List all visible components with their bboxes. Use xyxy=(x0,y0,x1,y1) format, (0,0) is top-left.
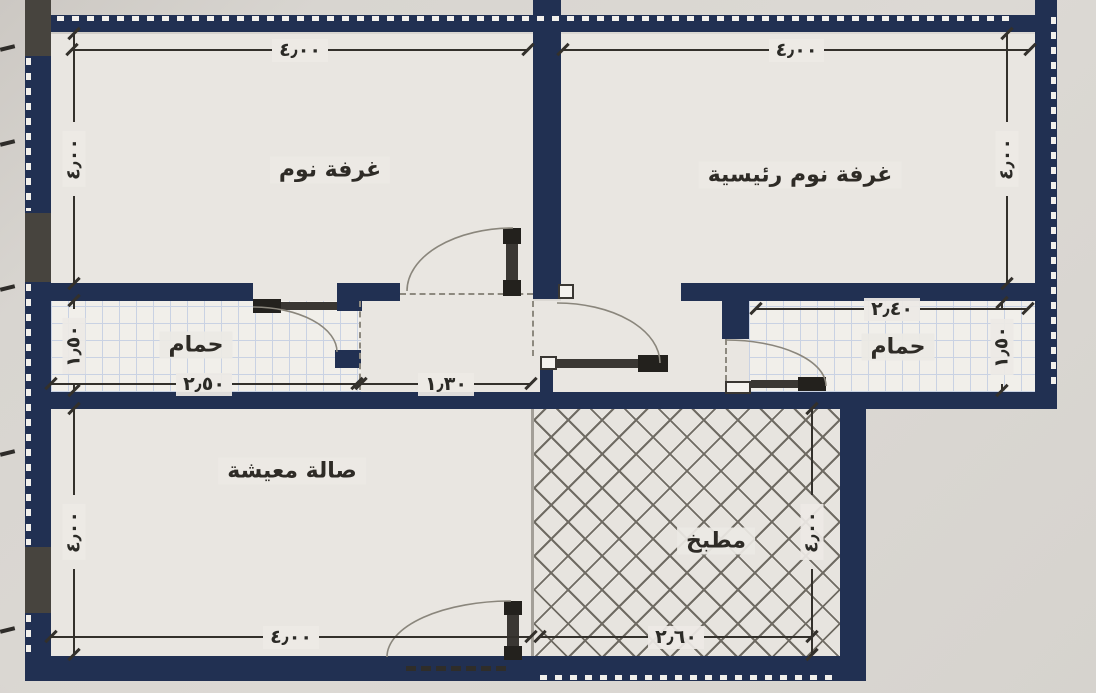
dim-label-bathroom-left-width: ٢٫٥٠ xyxy=(176,373,232,396)
wall-hall-top-left-b xyxy=(337,283,400,301)
wall-hatch-left-1 xyxy=(26,58,31,211)
left-edge-tick-5 xyxy=(0,626,15,634)
dim-label-bathroom-right-depth: ١٫٥٠ xyxy=(991,319,1014,375)
floor-plan-canvas: ٤٫٠٠ ٤٫٠٠ ٢٫٥٠ ١٫٣٠ ٢٫٤٠ ٤٫٠٠ ٢٫٦٠ ٤٫٠٠ … xyxy=(0,0,1096,693)
dim-label-kitchen-width: ٢٫٦٠ xyxy=(648,626,704,649)
door-handle-bath-right xyxy=(798,377,826,391)
room-label-living-room: صالة معيشة xyxy=(218,458,366,485)
door-handle-bath-left xyxy=(253,299,281,313)
wall-hatch-right xyxy=(1051,17,1056,390)
dim-label-master-bedroom-depth: ٤٫٠٠ xyxy=(996,131,1019,187)
dim-label-hall-width: ١٫٣٠ xyxy=(418,373,474,396)
door-cap-bedroom-bottom xyxy=(503,280,521,296)
dashed-master-door-opening xyxy=(532,301,534,356)
dim-label-living-room-width: ٤٫٠٠ xyxy=(263,626,319,649)
dim-label-bathroom-right-width: ٢٫٤٠ xyxy=(864,298,920,321)
door-cap-entrance-top xyxy=(504,601,522,615)
dim-label-bathroom-left-depth: ١٫٥٠ xyxy=(63,318,86,374)
dim-label-kitchen-depth: ٤٫٠٠ xyxy=(801,504,824,560)
door-cap-entrance-bottom xyxy=(504,646,522,660)
wall-hatch-left-3 xyxy=(26,615,31,655)
wall-hatch-left-2 xyxy=(26,284,31,545)
dim-label-master-bedroom-width: ٤٫٠٠ xyxy=(769,39,825,62)
left-edge-tick-3 xyxy=(0,284,15,292)
left-edge-tick-2 xyxy=(0,139,15,147)
dim-label-bedroom-width: ٤٫٠٠ xyxy=(272,39,328,62)
room-label-bathroom-right: حمام xyxy=(862,334,935,361)
dashed-bath-right-door-opening xyxy=(725,339,727,381)
room-label-master-bedroom: غرفة نوم رئيسية xyxy=(699,162,902,189)
wall-master-door-stub xyxy=(540,367,553,392)
left-edge-tick-4 xyxy=(0,449,15,457)
lintel-left-lower xyxy=(25,547,51,613)
floor-opening-master-door xyxy=(561,283,681,301)
lintel-left-middle xyxy=(25,213,51,282)
wall-hatch-bottom xyxy=(540,675,840,680)
door-hinge-master xyxy=(558,284,574,299)
dim-label-living-room-depth: ٤٫٠٠ xyxy=(63,504,86,560)
dashed-entrance-opening xyxy=(406,666,506,671)
kitchen-living-divider-line xyxy=(531,409,534,656)
wall-center-top xyxy=(533,0,561,299)
wall-kitchen-right xyxy=(840,409,866,681)
left-edge-tick-1 xyxy=(0,44,15,52)
wall-hatch-top xyxy=(57,16,1015,21)
room-label-bathroom-left: حمام xyxy=(160,332,233,359)
wall-hall-top-left-a xyxy=(25,283,253,301)
room-label-kitchen: مطبخ xyxy=(677,528,755,555)
door-stop-master xyxy=(540,356,557,370)
lintel-left-top xyxy=(25,0,51,56)
wall-bath-left-stub xyxy=(335,350,361,368)
door-stop-bath-right xyxy=(725,381,751,394)
wall-bath-right-stub xyxy=(722,301,749,339)
room-label-bedroom: غرفة نوم xyxy=(270,157,390,184)
dim-label-bedroom-depth: ٤٫٠٠ xyxy=(63,131,86,187)
door-handle-master xyxy=(638,355,668,372)
door-cap-bedroom-top xyxy=(503,228,521,244)
floor-living-room xyxy=(51,409,531,656)
